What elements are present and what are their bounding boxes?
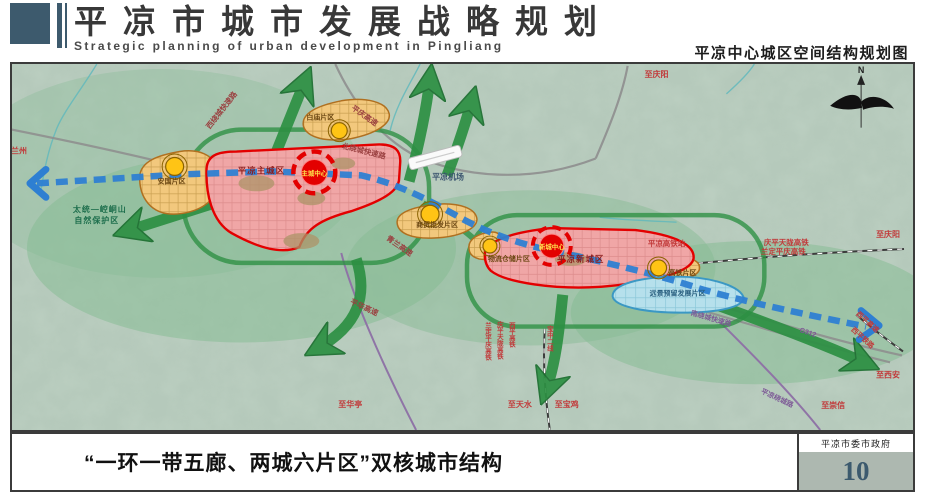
structure-map: N 至兰州 太统—崆峒山 自然保护区 安国片区 平凉主城区 主城中心 白庙片区 … — [12, 64, 913, 430]
page-number: 10 — [799, 452, 913, 490]
label-to-tianshui: 至天水 — [508, 399, 533, 409]
label-to-baoji: 至宝鸡 — [555, 399, 579, 409]
header-bar-decoration — [57, 3, 62, 48]
label-wuliu-district: 物流仓储片区 — [488, 254, 530, 263]
label-to-lanzhou: 至兰州 — [12, 146, 27, 156]
label-to-huating: 至华亭 — [338, 399, 362, 409]
label-hsr-line1: 庆平天陇高铁 — [764, 237, 809, 247]
page-subtitle-en: Strategic planning of urban development … — [74, 39, 613, 53]
footer-caption: “一环一带五廊、两城六片区”双核城市结构 — [12, 434, 797, 490]
compass-n-label: N — [858, 65, 864, 75]
label-gaotie-district: 高铁片区 — [669, 268, 697, 277]
page-number-box: 平凉市委市政府 10 — [797, 434, 913, 490]
header-titles: 平凉市城市发展战略规划 Strategic planning of urban … — [74, 5, 613, 53]
label-main-center: 主城中心 — [301, 168, 327, 177]
label-new-city: 平凉新城区 — [557, 254, 604, 264]
label-hsr-station: 平凉高铁站 — [648, 238, 686, 248]
label-anguo-district: 安国片区 — [158, 176, 186, 185]
map-title: 平凉中心城区空间结构规划图 — [694, 42, 909, 63]
label-to-xian: 至西安 — [876, 369, 900, 379]
plan-sheet: 平凉市城市发展战略规划 Strategic planning of urban … — [0, 0, 925, 500]
label-nature-reserve-2: 自然保护区 — [74, 215, 119, 225]
label-to-qingyang-top: 至庆阳 — [645, 69, 669, 79]
label-shangmao-district: 商贸批发片区 — [416, 220, 458, 229]
label-main-city: 平凉主城区 — [238, 165, 285, 175]
agency-label: 平凉市委市政府 — [799, 434, 913, 452]
label-to-qingyang-right: 至庆阳 — [876, 229, 900, 239]
footer: “一环一带五廊、两城六片区”双核城市结构 平凉市委市政府 10 — [10, 432, 915, 492]
label-hsr-line2: 兰定平庆高铁 — [761, 246, 806, 256]
label-baimiao-district: 白庙片区 — [306, 113, 334, 122]
label-to-chongxin: 至崇信 — [821, 400, 845, 410]
label-nature-reserve-1: 太统—崆峒山 — [73, 204, 127, 214]
header-bar-decoration-thin — [65, 3, 67, 48]
label-yuanjing-district: 远景预留发展片区 — [650, 289, 706, 298]
label-baozhong2-rail: 宝中二线 — [545, 324, 553, 352]
label-airport: 平凉机场 — [432, 171, 464, 181]
label-new-center: 新城中心 — [539, 242, 565, 251]
map-frame: N 至兰州 太统—崆峒山 自然保护区 安国片区 平凉主城区 主城中心 白庙片区 … — [10, 62, 915, 432]
page-title: 平凉市城市发展战略规划 — [74, 5, 613, 39]
header-square-decoration — [10, 3, 50, 44]
